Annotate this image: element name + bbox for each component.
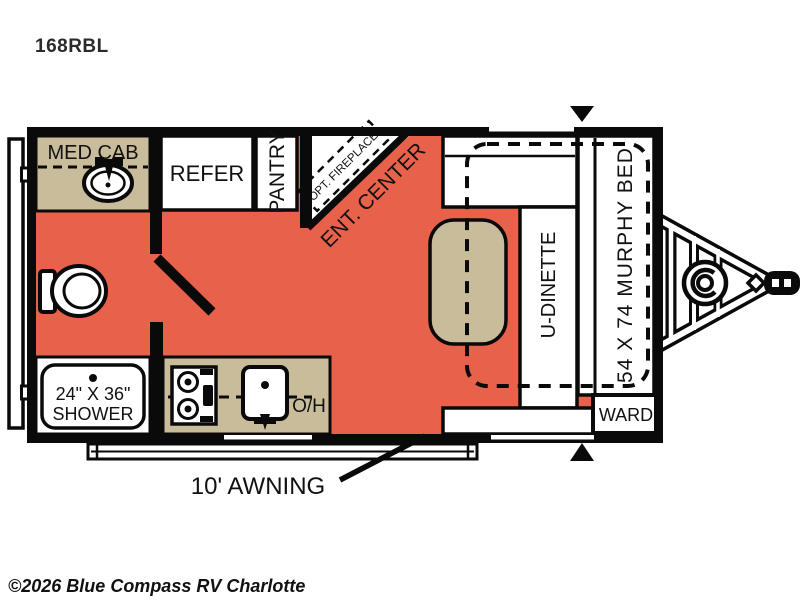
refer-label: REFER bbox=[170, 161, 245, 186]
wall-segment bbox=[300, 136, 312, 228]
tongue-jack-wheel bbox=[684, 262, 726, 304]
floorplan-page: 168RBL bbox=[0, 0, 800, 600]
kitchen-sink-icon bbox=[243, 367, 287, 430]
shower-size-label: 24" X 36" bbox=[56, 384, 131, 404]
dealer-watermark: ©2026 Blue Compass RV Charlotte bbox=[8, 576, 305, 596]
awning-label: 10' AWNING bbox=[191, 473, 325, 500]
ward-label: WARD bbox=[599, 405, 653, 425]
page-title: 168RBL bbox=[35, 36, 109, 57]
stove-icon bbox=[172, 367, 216, 424]
dinette-bench-bottom bbox=[443, 408, 593, 434]
shower-drain bbox=[89, 374, 97, 382]
entry-door-opening bbox=[491, 435, 594, 440]
window-kitchen bbox=[224, 435, 312, 440]
med-cab-label: MED CAB bbox=[47, 142, 138, 164]
floorplan-drawing: 168RBL bbox=[0, 0, 800, 600]
pantry-label: PANTRY bbox=[266, 130, 289, 213]
hitch-coupler bbox=[764, 271, 800, 295]
overhead-cabinet-label: O/H bbox=[292, 396, 326, 417]
window-front bbox=[489, 127, 574, 132]
u-dinette-label: U-DINETTE bbox=[538, 232, 560, 339]
dinette-bench-top bbox=[443, 136, 577, 207]
shower-label: SHOWER bbox=[53, 404, 134, 424]
murphy-bed-label: 54 X 74 MURPHY BED bbox=[614, 147, 637, 383]
toilet-icon bbox=[40, 266, 106, 316]
